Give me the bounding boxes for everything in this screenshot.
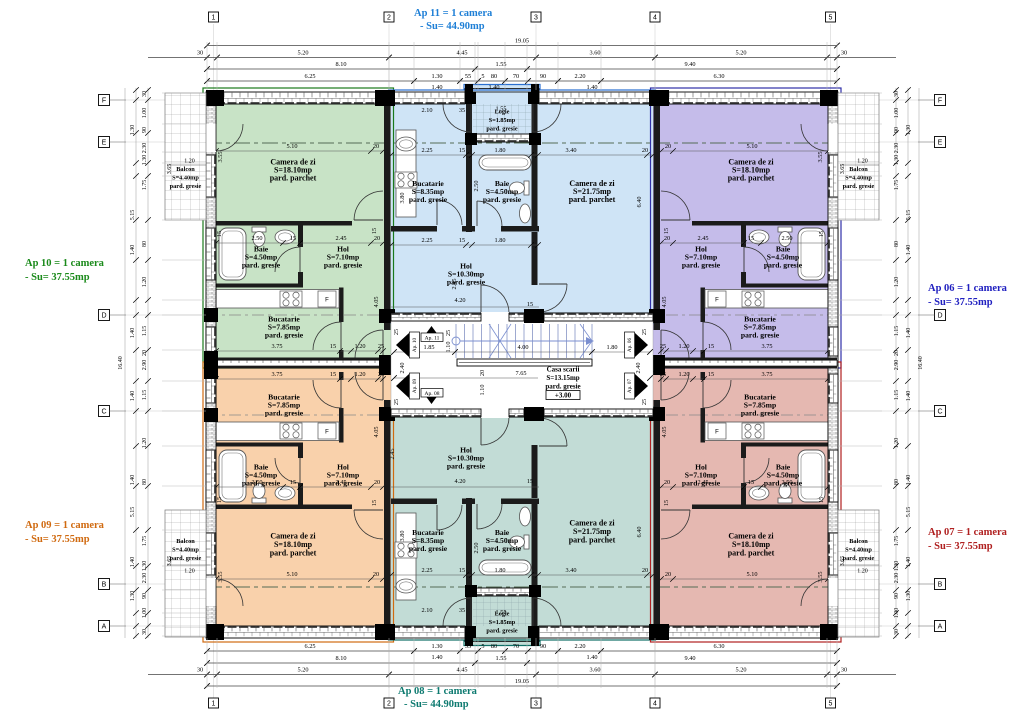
svg-text:2.45: 2.45 <box>697 235 708 242</box>
svg-text:F: F <box>938 98 942 105</box>
svg-text:15: 15 <box>459 567 465 574</box>
svg-text:1.40: 1.40 <box>431 84 442 91</box>
svg-text:S=4.40mp: S=4.40mp <box>172 547 199 554</box>
svg-text:1.20: 1.20 <box>857 569 868 575</box>
svg-text:2.30: 2.30 <box>894 573 900 584</box>
svg-text:2: 2 <box>387 15 391 22</box>
svg-text:2.45: 2.45 <box>451 278 458 289</box>
svg-text:2.25: 2.25 <box>421 237 432 244</box>
svg-text:5.15: 5.15 <box>130 507 136 518</box>
svg-text:90: 90 <box>540 73 546 80</box>
svg-text:S=4.40mp: S=4.40mp <box>172 175 199 182</box>
svg-text:30: 30 <box>894 629 900 635</box>
svg-text:3.60: 3.60 <box>589 50 600 57</box>
svg-text:20: 20 <box>642 567 648 574</box>
svg-text:2.10: 2.10 <box>421 107 432 114</box>
svg-text:Balcon: Balcon <box>176 166 195 173</box>
svg-text:30: 30 <box>142 629 148 635</box>
svg-text:pard. parchet: pard. parchet <box>728 174 775 183</box>
svg-text:1.20: 1.20 <box>678 343 689 350</box>
svg-text:2.20: 2.20 <box>574 73 585 80</box>
svg-text:- Su= 37.55mp: - Su= 37.55mp <box>25 272 90 283</box>
svg-text:Ap. 09: Ap. 09 <box>412 379 418 394</box>
svg-text:55: 55 <box>465 73 471 80</box>
svg-text:15: 15 <box>818 231 825 237</box>
svg-text:4.00: 4.00 <box>517 344 528 351</box>
svg-text:+3.00: +3.00 <box>555 392 572 400</box>
svg-text:5.20: 5.20 <box>297 667 308 674</box>
svg-text:90: 90 <box>894 593 900 599</box>
svg-text:4.20: 4.20 <box>454 478 465 485</box>
svg-text:pard. gresie: pard. gresie <box>324 261 363 270</box>
svg-text:35: 35 <box>459 607 465 614</box>
svg-text:25: 25 <box>445 330 452 336</box>
svg-text:C: C <box>101 409 106 416</box>
svg-text:4: 4 <box>653 701 657 708</box>
svg-text:20: 20 <box>373 143 379 150</box>
svg-text:15: 15 <box>371 500 378 506</box>
svg-text:Balcon: Balcon <box>849 166 868 173</box>
svg-text:pard. gresie: pard. gresie <box>483 544 522 553</box>
svg-text:6.25: 6.25 <box>304 643 315 650</box>
svg-text:Balcon: Balcon <box>176 538 195 545</box>
svg-text:20: 20 <box>374 235 380 242</box>
svg-text:1.00: 1.00 <box>894 108 900 119</box>
svg-text:1.15: 1.15 <box>894 326 900 337</box>
svg-text:1: 1 <box>212 15 216 22</box>
svg-text:3.75: 3.75 <box>761 371 772 378</box>
svg-text:pard. parchet: pard. parchet <box>270 174 317 183</box>
svg-text:15: 15 <box>290 479 296 486</box>
svg-text:25: 25 <box>653 370 659 377</box>
svg-text:F: F <box>325 430 329 436</box>
svg-text:Ap 06 = 1 camera: Ap 06 = 1 camera <box>928 283 1008 294</box>
svg-text:25: 25 <box>660 343 666 350</box>
svg-text:15: 15 <box>708 343 714 350</box>
svg-text:90: 90 <box>142 127 148 133</box>
svg-text:1.00: 1.00 <box>894 608 900 619</box>
svg-text:30: 30 <box>197 50 203 57</box>
svg-text:B: B <box>102 582 107 589</box>
svg-text:1.80: 1.80 <box>494 147 505 154</box>
svg-text:Ap 08 = 1 camera: Ap 08 = 1 camera <box>398 686 478 697</box>
svg-text:1.55: 1.55 <box>495 609 506 616</box>
svg-text:pard. gresie: pard. gresie <box>486 628 517 635</box>
svg-text:6.25: 6.25 <box>304 73 315 80</box>
svg-text:D: D <box>937 313 942 320</box>
svg-text:pard. parchet: pard. parchet <box>728 549 775 558</box>
svg-text:A: A <box>102 624 107 631</box>
svg-text:15: 15 <box>748 479 754 486</box>
svg-text:pard. gresie: pard. gresie <box>843 183 875 190</box>
svg-text:pard. gresie: pard. gresie <box>409 544 448 553</box>
svg-text:1.75: 1.75 <box>142 536 148 547</box>
svg-text:1.40: 1.40 <box>130 245 136 256</box>
svg-text:4.05: 4.05 <box>373 426 380 437</box>
svg-text:1.20: 1.20 <box>184 159 195 165</box>
svg-text:Ap. 06: Ap. 06 <box>627 338 633 353</box>
svg-text:15: 15 <box>216 497 223 503</box>
svg-text:5.20: 5.20 <box>297 50 308 57</box>
svg-text:1.20: 1.20 <box>184 569 195 575</box>
svg-text:20: 20 <box>479 370 486 376</box>
svg-text:E: E <box>938 140 943 147</box>
svg-text:2.90: 2.90 <box>142 360 148 371</box>
svg-text:5: 5 <box>481 73 484 80</box>
svg-text:1.20: 1.20 <box>678 371 689 378</box>
svg-text:4.20: 4.20 <box>454 297 465 304</box>
svg-text:80: 80 <box>894 479 900 485</box>
svg-text:8.10: 8.10 <box>335 61 346 68</box>
svg-text:30: 30 <box>841 50 847 57</box>
svg-text:30: 30 <box>197 667 203 674</box>
svg-text:15: 15 <box>330 371 336 378</box>
svg-text:- Su= 37.55mp: - Su= 37.55mp <box>928 541 993 552</box>
svg-text:1.75: 1.75 <box>142 180 148 191</box>
svg-text:pard. gresie: pard. gresie <box>843 555 875 562</box>
svg-text:2.50: 2.50 <box>251 479 262 486</box>
svg-text:15: 15 <box>459 237 465 244</box>
svg-text:6.40: 6.40 <box>636 526 643 537</box>
svg-text:Balcon: Balcon <box>849 538 868 545</box>
svg-text:3.75: 3.75 <box>271 371 282 378</box>
svg-text:1.15: 1.15 <box>142 326 148 337</box>
svg-text:2.25: 2.25 <box>421 567 432 574</box>
svg-text:4.05: 4.05 <box>373 296 380 307</box>
svg-text:pard. parchet: pard. parchet <box>270 549 317 558</box>
svg-text:1.40: 1.40 <box>488 84 499 91</box>
svg-text:70: 70 <box>513 73 519 80</box>
svg-text:pard. gresie: pard. gresie <box>741 409 780 418</box>
svg-text:2.50: 2.50 <box>781 235 792 242</box>
svg-text:3.80: 3.80 <box>399 192 406 203</box>
svg-text:25: 25 <box>641 399 648 405</box>
svg-text:S=1.85mp: S=1.85mp <box>489 619 516 626</box>
svg-text:F: F <box>715 430 719 436</box>
svg-text:Ap. 07: Ap. 07 <box>627 379 633 394</box>
svg-text:80: 80 <box>894 241 900 247</box>
svg-text:16.40: 16.40 <box>918 356 924 370</box>
svg-text:pard. gresie: pard. gresie <box>483 195 522 204</box>
svg-text:1.15: 1.15 <box>142 390 148 401</box>
svg-text:pard. gresie: pard. gresie <box>486 126 517 133</box>
svg-text:Ap. 10: Ap. 10 <box>412 338 418 353</box>
svg-text:1.20: 1.20 <box>142 277 148 288</box>
svg-text:Casa scarii: Casa scarii <box>547 366 580 374</box>
svg-text:15: 15 <box>371 228 378 234</box>
svg-text:15: 15 <box>663 228 670 234</box>
svg-text:1.40: 1.40 <box>586 84 597 91</box>
svg-text:3.55: 3.55 <box>217 151 224 162</box>
svg-text:2.30: 2.30 <box>142 143 148 154</box>
svg-text:Ap. 11: Ap. 11 <box>425 336 440 342</box>
svg-text:pard. gresie: pard. gresie <box>764 261 803 270</box>
svg-text:6.30: 6.30 <box>713 73 724 80</box>
svg-text:3.40: 3.40 <box>565 567 576 574</box>
svg-text:4.05: 4.05 <box>661 426 668 437</box>
svg-text:Ap 10 = 1 camera: Ap 10 = 1 camera <box>25 258 105 269</box>
svg-text:20: 20 <box>664 479 670 486</box>
svg-text:15: 15 <box>330 343 336 350</box>
svg-text:pard. gresie: pard. gresie <box>170 183 202 190</box>
svg-text:2: 2 <box>387 701 391 708</box>
svg-text:2.45: 2.45 <box>335 235 346 242</box>
svg-text:Ap. 08: Ap. 08 <box>425 391 440 397</box>
svg-text:pard. gresie: pard. gresie <box>242 261 281 270</box>
svg-text:1.40: 1.40 <box>906 391 912 402</box>
svg-text:25: 25 <box>378 343 384 350</box>
svg-text:80: 80 <box>142 479 148 485</box>
svg-text:1.40: 1.40 <box>130 557 136 568</box>
svg-text:20: 20 <box>642 147 648 154</box>
svg-text:2.10: 2.10 <box>421 607 432 614</box>
svg-text:5.10: 5.10 <box>746 571 757 578</box>
svg-text:A: A <box>938 624 943 631</box>
svg-text:1.10: 1.10 <box>479 384 486 395</box>
svg-text:2.20: 2.20 <box>574 643 585 650</box>
svg-text:1.20: 1.20 <box>354 371 365 378</box>
svg-text:1.30: 1.30 <box>431 643 442 650</box>
svg-text:80: 80 <box>142 241 148 247</box>
svg-text:80: 80 <box>491 643 497 650</box>
svg-text:B: B <box>938 582 943 589</box>
svg-text:4.45: 4.45 <box>456 667 467 674</box>
svg-text:5.10: 5.10 <box>286 143 297 150</box>
svg-text:30: 30 <box>894 91 900 97</box>
svg-text:16.40: 16.40 <box>118 356 124 370</box>
svg-text:F: F <box>325 298 329 304</box>
svg-text:Ap 11 = 1 camera: Ap 11 = 1 camera <box>414 8 493 19</box>
svg-text:pard. gresie: pard. gresie <box>741 331 780 340</box>
svg-text:3.65: 3.65 <box>167 556 173 567</box>
svg-text:20: 20 <box>664 235 670 242</box>
svg-text:30: 30 <box>841 667 847 674</box>
svg-text:5: 5 <box>829 701 833 708</box>
svg-text:25: 25 <box>393 399 400 405</box>
svg-text:F: F <box>715 298 719 304</box>
svg-text:pard. gresie: pard. gresie <box>447 462 486 471</box>
svg-text:pard. gresie: pard. gresie <box>545 383 580 391</box>
svg-text:5.15: 5.15 <box>130 210 136 221</box>
svg-text:15: 15 <box>290 235 296 242</box>
svg-text:20: 20 <box>665 143 671 150</box>
svg-text:2.50: 2.50 <box>251 235 262 242</box>
svg-text:5: 5 <box>481 643 484 650</box>
svg-text:1.80: 1.80 <box>606 344 617 351</box>
svg-text:1.20: 1.20 <box>354 343 365 350</box>
svg-text:20: 20 <box>374 479 380 486</box>
svg-text:S=1.85mp: S=1.85mp <box>489 117 516 124</box>
svg-text:55: 55 <box>465 643 471 650</box>
svg-text:1.30: 1.30 <box>906 591 912 602</box>
svg-text:90: 90 <box>540 643 546 650</box>
svg-text:4.45: 4.45 <box>456 50 467 57</box>
svg-text:6.30: 6.30 <box>713 643 724 650</box>
svg-text:2.50: 2.50 <box>473 180 480 191</box>
svg-text:9.40: 9.40 <box>684 655 695 662</box>
svg-text:- Su= 44.90mp: - Su= 44.90mp <box>404 699 469 710</box>
svg-text:35: 35 <box>459 107 465 114</box>
svg-text:1.80: 1.80 <box>494 567 505 574</box>
svg-text:1.40: 1.40 <box>906 245 912 256</box>
svg-text:15: 15 <box>459 147 465 154</box>
svg-text:15: 15 <box>527 478 533 485</box>
svg-text:5.10: 5.10 <box>286 571 297 578</box>
svg-text:2.45: 2.45 <box>697 479 708 486</box>
svg-text:5: 5 <box>829 15 833 22</box>
svg-text:2.30: 2.30 <box>142 573 148 584</box>
svg-text:3: 3 <box>534 15 538 22</box>
svg-text:3.55: 3.55 <box>217 571 224 582</box>
svg-text:pard. gresie: pard. gresie <box>682 261 721 270</box>
svg-text:E: E <box>102 140 107 147</box>
svg-text:5.15: 5.15 <box>906 507 912 518</box>
svg-text:2.30: 2.30 <box>894 143 900 154</box>
svg-text:1.55: 1.55 <box>495 106 506 113</box>
svg-text:4: 4 <box>653 15 657 22</box>
svg-text:pard. gresie: pard. gresie <box>409 195 448 204</box>
svg-text:30: 30 <box>142 91 148 97</box>
svg-text:pard. gresie: pard. gresie <box>170 555 202 562</box>
svg-text:2.50: 2.50 <box>781 479 792 486</box>
svg-text:1.30: 1.30 <box>142 561 148 572</box>
svg-text:1: 1 <box>212 701 216 708</box>
svg-text:3.40: 3.40 <box>565 147 576 154</box>
svg-text:pard. parchet: pard. parchet <box>569 195 616 204</box>
svg-text:- Su= 37.55mp: - Su= 37.55mp <box>25 534 90 545</box>
svg-text:1.40: 1.40 <box>906 557 912 568</box>
svg-text:25: 25 <box>641 329 648 335</box>
svg-text:2.25: 2.25 <box>421 147 432 154</box>
svg-text:1.40: 1.40 <box>130 328 136 339</box>
svg-text:1.40: 1.40 <box>906 328 912 339</box>
svg-text:1.30: 1.30 <box>431 73 442 80</box>
svg-text:2.40: 2.40 <box>399 362 406 373</box>
svg-text:2.40: 2.40 <box>635 362 642 373</box>
svg-text:1.20: 1.20 <box>894 277 900 288</box>
svg-text:15: 15 <box>708 371 714 378</box>
svg-text:C: C <box>937 409 942 416</box>
svg-text:3.60: 3.60 <box>589 667 600 674</box>
svg-text:1.40: 1.40 <box>431 654 442 661</box>
svg-text:6.40: 6.40 <box>636 196 643 207</box>
svg-text:S=13.15mp: S=13.15mp <box>546 374 579 382</box>
svg-text:3: 3 <box>534 701 538 708</box>
svg-text:1.75: 1.75 <box>894 536 900 547</box>
svg-text:90: 90 <box>142 593 148 599</box>
svg-text:1.00: 1.00 <box>142 608 148 619</box>
svg-text:5.10: 5.10 <box>746 143 757 150</box>
svg-text:3.65: 3.65 <box>840 164 846 175</box>
svg-text:3.65: 3.65 <box>840 556 846 567</box>
svg-text:3.55: 3.55 <box>817 151 824 162</box>
svg-text:3.80: 3.80 <box>399 530 406 541</box>
svg-text:1.80: 1.80 <box>494 237 505 244</box>
svg-text:1.15: 1.15 <box>894 390 900 401</box>
svg-text:15: 15 <box>663 500 670 506</box>
svg-text:pard. parchet: pard. parchet <box>569 536 616 545</box>
svg-text:S=4.40mp: S=4.40mp <box>845 547 872 554</box>
svg-text:1.10: 1.10 <box>445 341 452 352</box>
svg-text:25: 25 <box>393 329 400 335</box>
svg-text:5.20: 5.20 <box>735 50 746 57</box>
svg-text:1.85: 1.85 <box>423 344 434 351</box>
svg-text:S=4.40mp: S=4.40mp <box>845 175 872 182</box>
svg-text:2.50: 2.50 <box>473 542 480 553</box>
svg-text:pard. gresie: pard. gresie <box>265 331 304 340</box>
svg-text:3.75: 3.75 <box>761 343 772 350</box>
svg-text:1.40: 1.40 <box>906 475 912 486</box>
svg-text:3.75: 3.75 <box>271 343 282 350</box>
svg-text:15: 15 <box>216 231 223 237</box>
svg-text:Ap 09 = 1 camera: Ap 09 = 1 camera <box>25 520 105 531</box>
svg-text:pard. gresie: pard. gresie <box>265 409 304 418</box>
svg-text:F: F <box>102 98 106 105</box>
svg-text:4.05: 4.05 <box>661 296 668 307</box>
svg-text:70: 70 <box>513 643 519 650</box>
svg-text:80: 80 <box>491 73 497 80</box>
svg-text:20: 20 <box>665 571 671 578</box>
svg-text:1.40: 1.40 <box>586 654 597 661</box>
svg-text:1.30: 1.30 <box>894 561 900 572</box>
svg-text:- Su= 44.90mp: - Su= 44.90mp <box>420 21 485 32</box>
svg-text:2.45: 2.45 <box>335 479 346 486</box>
svg-text:1.40: 1.40 <box>130 391 136 402</box>
svg-text:15: 15 <box>748 235 754 242</box>
svg-text:2.90: 2.90 <box>894 360 900 371</box>
svg-text:1.00: 1.00 <box>142 108 148 119</box>
svg-text:1.75: 1.75 <box>894 180 900 191</box>
svg-text:20: 20 <box>373 571 379 578</box>
svg-text:D: D <box>101 313 106 320</box>
svg-text:8.10: 8.10 <box>335 655 346 662</box>
svg-text:9.40: 9.40 <box>684 61 695 68</box>
svg-text:Ap 07 = 1 camera: Ap 07 = 1 camera <box>928 527 1008 538</box>
svg-text:7.65: 7.65 <box>515 370 526 377</box>
svg-text:5.20: 5.20 <box>735 667 746 674</box>
svg-text:- Su= 37.55mp: - Su= 37.55mp <box>928 297 993 308</box>
svg-text:1.30: 1.30 <box>130 591 136 602</box>
svg-text:15: 15 <box>818 497 825 503</box>
svg-text:3.65: 3.65 <box>167 164 173 175</box>
svg-text:1.40: 1.40 <box>130 475 136 486</box>
svg-text:1.20: 1.20 <box>857 159 868 165</box>
